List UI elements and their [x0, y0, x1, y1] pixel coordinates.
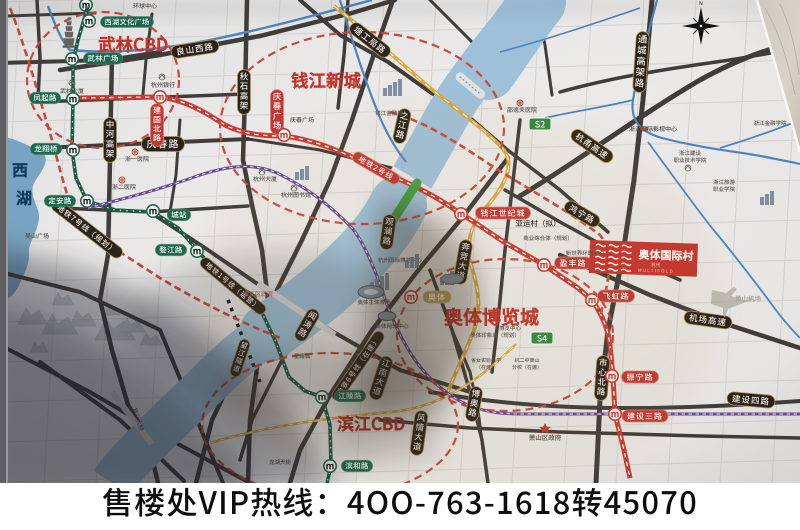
svg-text:售楼处VIP热线：4OO-763-1618转45070: 售楼处VIP热线：4OO-763-1618转45070 — [102, 478, 698, 523]
